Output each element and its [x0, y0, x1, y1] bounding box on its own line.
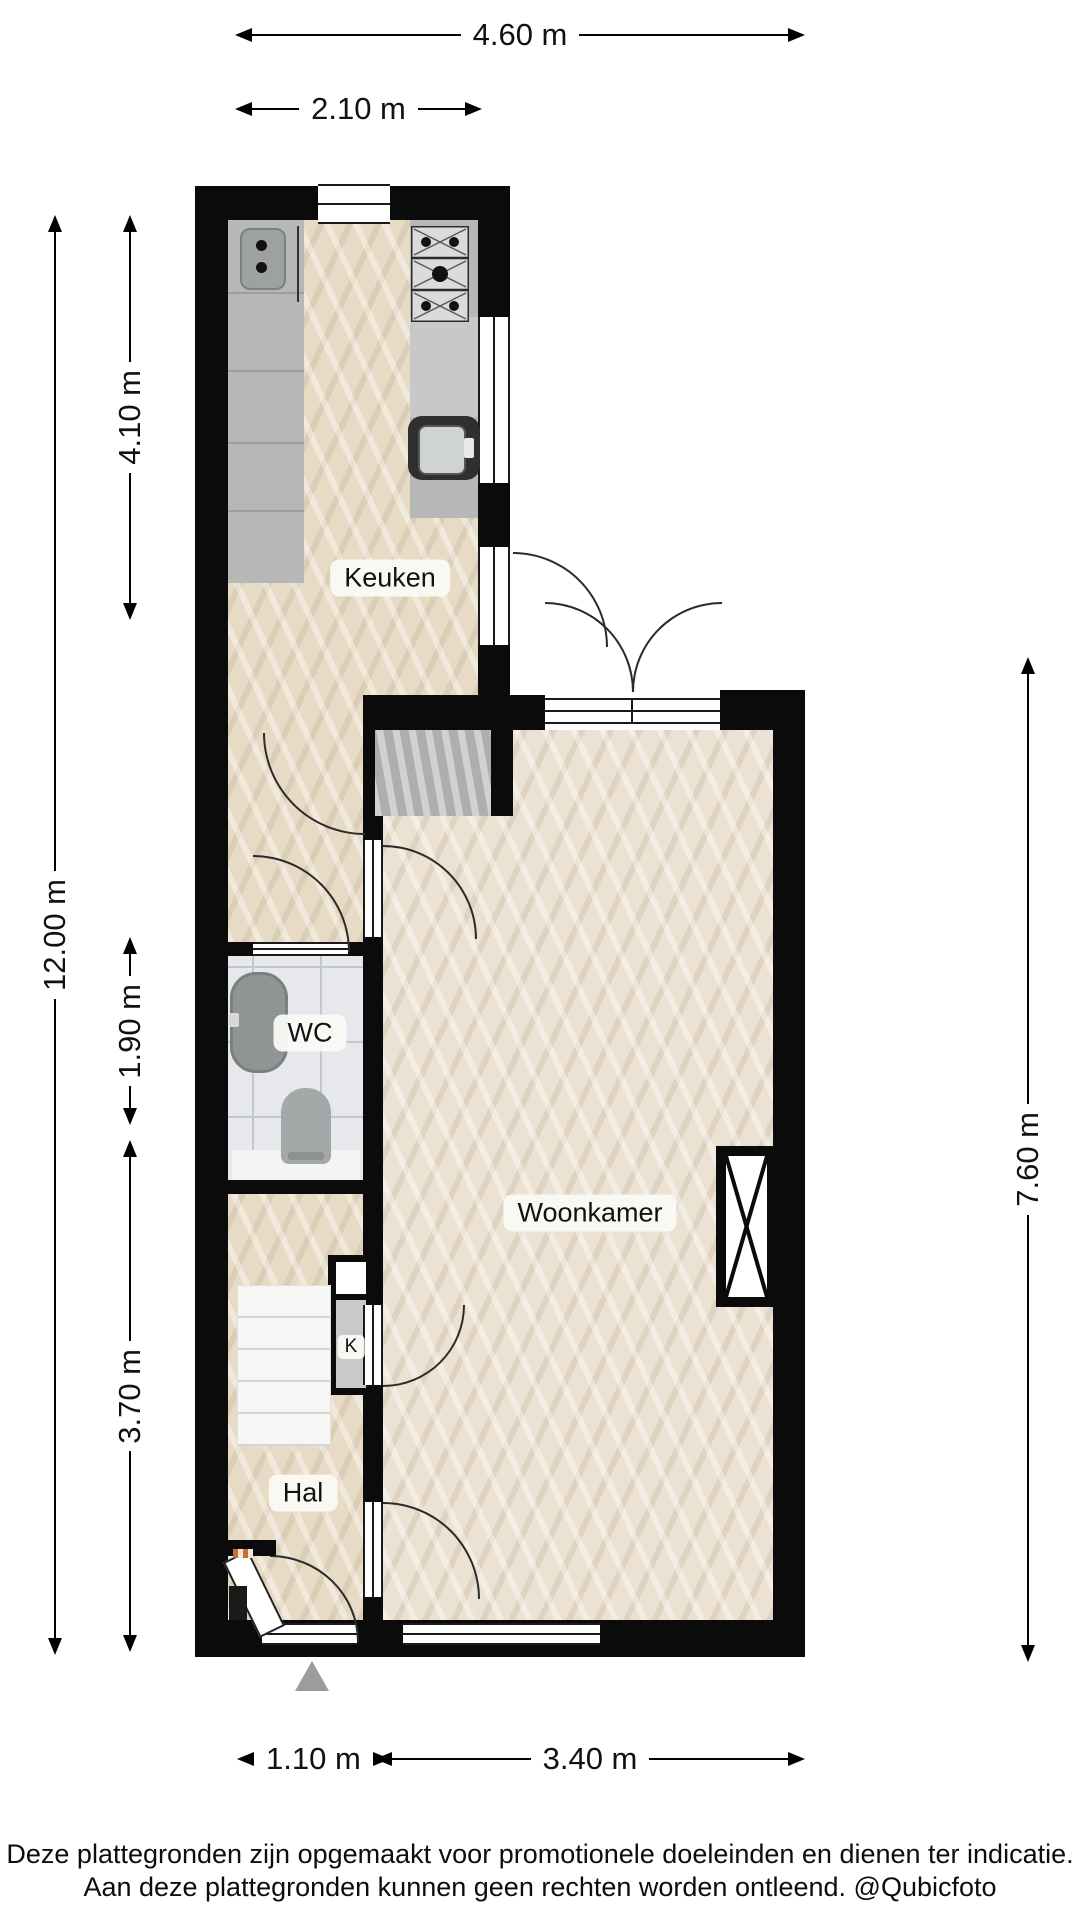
room-label-woonkamer: Woonkamer	[503, 1195, 676, 1232]
dimension-hal-height: 3.70 m	[95, 1140, 165, 1652]
counter-edge-line	[297, 226, 299, 302]
wall-kitchen-right-lower	[478, 645, 510, 695]
dimension-kitchen-height: 4.10 m	[95, 215, 165, 620]
dim-line	[129, 473, 131, 603]
meter-panel-icon	[229, 1586, 247, 1620]
closet-door-frame	[363, 1305, 383, 1385]
kitchen-sink-icon	[408, 416, 480, 480]
dim-label: 1.90 m	[112, 976, 148, 1087]
wall-kitchen-right-mid	[478, 483, 510, 547]
dim-arrow	[235, 102, 252, 116]
disclaimer-line-1: Deze plattegronden zijn opgemaakt voor p…	[0, 1838, 1080, 1871]
dim-label: 4.10 m	[112, 362, 148, 473]
dim-arrow	[465, 102, 482, 116]
wall-top-left	[195, 186, 320, 220]
dim-label: 7.60 m	[1010, 1104, 1046, 1215]
dimension-living-height: 7.60 m	[993, 657, 1063, 1662]
dim-arrow	[123, 215, 137, 232]
dim-label: 12.00 m	[37, 871, 73, 999]
disclaimer: Deze plattegronden zijn opgemaakt voor p…	[0, 1838, 1080, 1904]
wall-kitchen-living	[363, 695, 545, 730]
stairs	[237, 1285, 331, 1447]
dim-arrow	[237, 1752, 254, 1766]
wall-right	[773, 690, 805, 1657]
dim-line	[129, 954, 131, 976]
wall-inner-3	[363, 1395, 383, 1502]
dim-line	[129, 1157, 131, 1341]
small-appliance-icon	[240, 228, 286, 290]
counter-divider	[228, 370, 304, 372]
dimension-total-height: 12.00 m	[20, 215, 90, 1655]
dim-line	[129, 1451, 131, 1635]
dim-line	[418, 108, 465, 110]
wall-bottom-right	[600, 1620, 805, 1657]
dim-arrow	[123, 1140, 137, 1157]
dim-arrow	[375, 1752, 392, 1766]
hal-living-door-frame	[363, 1502, 383, 1597]
kitchen-side-window	[478, 317, 510, 483]
wc-wall-top-right	[348, 942, 383, 956]
dim-label: 4.60 m	[461, 17, 580, 53]
double-door-arc-right	[632, 602, 722, 692]
dim-label: 1.10 m	[254, 1741, 373, 1777]
disclaimer-line-2: Aan deze plattegronden kunnen geen recht…	[0, 1871, 1080, 1904]
wall-inner-4	[363, 1597, 383, 1620]
room-label-wc: WC	[274, 1015, 347, 1052]
wall-bottom-pier	[357, 1620, 403, 1657]
double-door-arc-left	[545, 602, 634, 692]
dim-line	[579, 34, 788, 36]
dim-line	[1027, 674, 1029, 1104]
stair-box-wall	[491, 730, 513, 816]
wall-inner-2	[363, 937, 383, 1255]
dimension-entrance-width: 1.10 m	[237, 1742, 362, 1776]
dim-arrow	[123, 1108, 137, 1125]
wc-wall-bottom	[228, 1180, 383, 1194]
dim-arrow	[48, 215, 62, 232]
room-label-keuken: Keuken	[330, 560, 450, 597]
stair-box	[375, 730, 491, 816]
wc-wall-top-left	[228, 942, 253, 956]
dim-line	[129, 1086, 131, 1108]
kitchen-side-door-frame	[478, 547, 510, 645]
closet-shaft	[336, 1262, 366, 1294]
gas-hob-icon	[411, 226, 469, 322]
dim-label: 2.10 m	[299, 91, 418, 127]
counter-divider	[228, 510, 304, 512]
dim-arrow	[235, 28, 252, 42]
counter-divider	[228, 292, 304, 294]
dim-label: 3.70 m	[112, 1341, 148, 1452]
wall-left	[195, 186, 228, 1657]
wall-bottom-left	[195, 1620, 262, 1657]
counter-marble-section	[410, 317, 478, 417]
dim-arrow	[788, 28, 805, 42]
floor-plan: Keuken WC Woonkamer Hal K 4.60 m 2.10 m …	[0, 0, 1080, 1920]
dim-arrow	[123, 937, 137, 954]
wall-kitchen-right-upper	[478, 186, 510, 317]
room-label-kast: K	[338, 1335, 365, 1359]
dim-line	[252, 34, 461, 36]
radiator-icon	[233, 1549, 253, 1558]
dim-arrow	[123, 603, 137, 620]
shaft-x-icon	[716, 1146, 777, 1307]
dim-arrow	[123, 1635, 137, 1652]
inner-door-frame-upper	[363, 840, 383, 937]
dim-arrow	[48, 1638, 62, 1655]
dim-line	[54, 232, 56, 871]
counter-divider	[228, 442, 304, 444]
dimension-total-width: 4.60 m	[235, 18, 805, 52]
kitchen-top-window	[318, 184, 390, 224]
woonkamer-floor	[383, 730, 773, 1620]
dim-line	[1027, 1215, 1029, 1645]
dim-line	[252, 108, 299, 110]
room-label-hal: Hal	[269, 1475, 338, 1512]
dim-arrow	[788, 1752, 805, 1766]
dim-label: 3.40 m	[531, 1741, 650, 1777]
toilet-icon	[281, 1088, 331, 1164]
dim-line	[54, 999, 56, 1638]
dim-line	[392, 1758, 531, 1760]
dim-line	[649, 1758, 788, 1760]
dim-line	[129, 232, 131, 362]
double-door-split	[631, 698, 633, 724]
living-bottom-window	[403, 1623, 600, 1645]
dimension-living-width: 3.40 m	[375, 1742, 805, 1776]
dimension-wc-height: 1.90 m	[95, 937, 165, 1125]
dim-arrow	[1021, 1645, 1035, 1662]
dimension-kitchen-width: 2.10 m	[235, 92, 482, 126]
dim-arrow	[1021, 657, 1035, 674]
entrance-arrow-icon	[295, 1661, 329, 1691]
